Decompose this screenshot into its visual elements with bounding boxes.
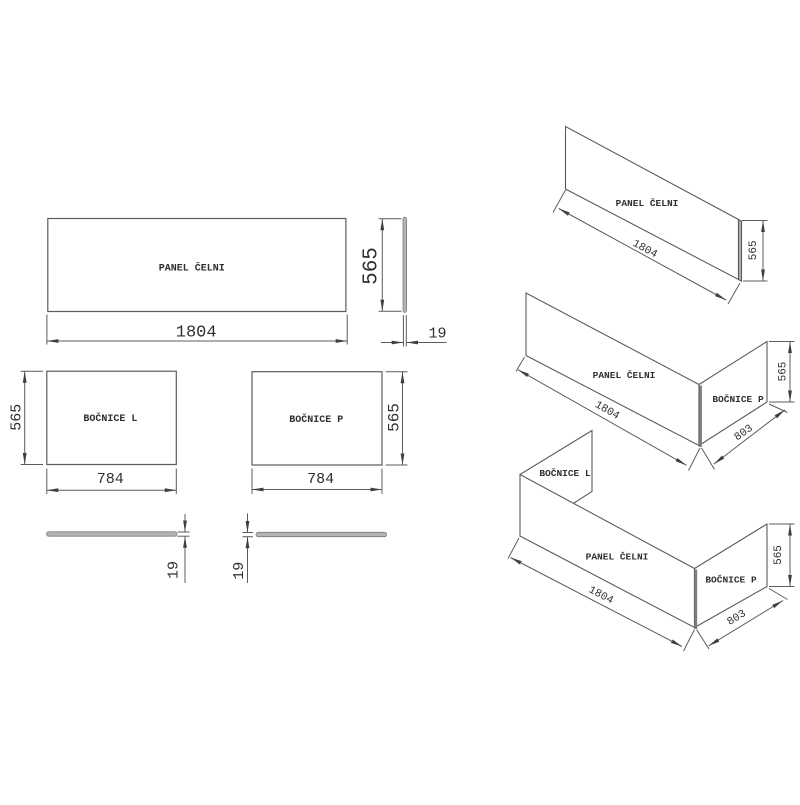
svg-text:1804: 1804 [176,324,217,343]
svg-text:BOČNICE P: BOČNICE P [712,394,764,405]
svg-text:784: 784 [307,471,334,488]
svg-text:565: 565 [8,404,25,431]
svg-text:19: 19 [165,561,182,579]
svg-text:565: 565 [385,403,403,432]
svg-text:PANEL ČELNI: PANEL ČELNI [159,260,225,274]
svg-text:19: 19 [231,562,248,580]
svg-text:BOČNICE P: BOČNICE P [705,575,757,586]
svg-text:PANEL ČELNI: PANEL ČELNI [593,370,656,381]
svg-text:565: 565 [778,362,790,382]
svg-text:19: 19 [428,325,446,342]
svg-text:BOČNICE L: BOČNICE L [539,468,591,479]
svg-text:565: 565 [748,240,760,260]
svg-text:BOČNICE L: BOČNICE L [83,411,137,425]
svg-text:565: 565 [361,247,384,285]
svg-text:565: 565 [773,545,785,565]
svg-text:PANEL ČELNI: PANEL ČELNI [586,552,649,563]
svg-text:BOČNICE P: BOČNICE P [289,412,343,426]
svg-text:784: 784 [97,471,124,488]
svg-text:PANEL ČELNI: PANEL ČELNI [616,198,679,209]
